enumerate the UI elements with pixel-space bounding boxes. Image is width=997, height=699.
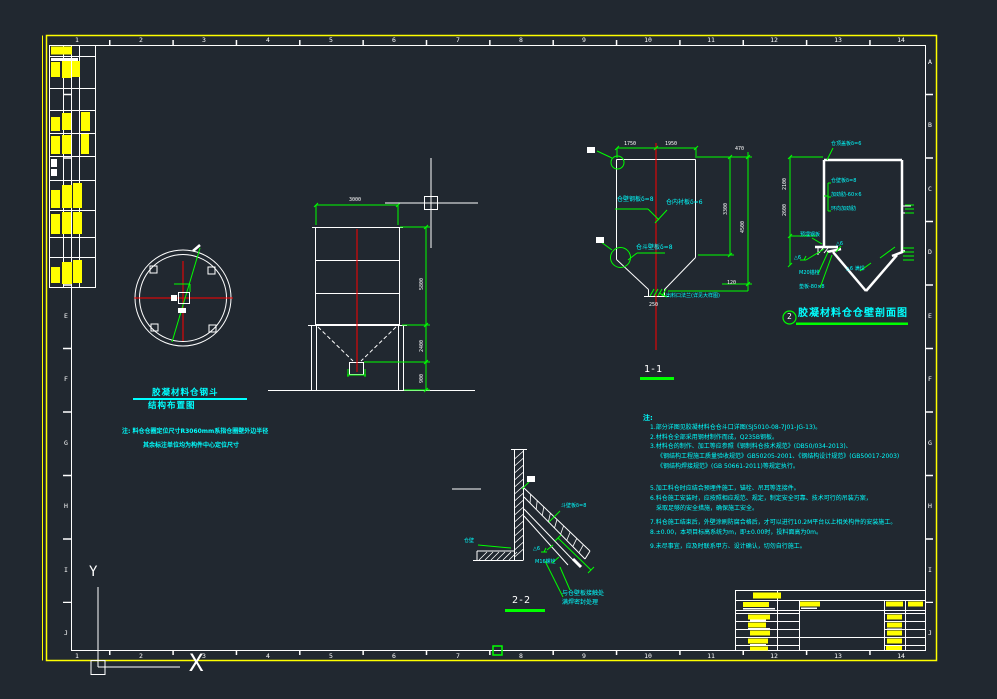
ruler-row-left: E [60, 313, 72, 320]
ruler-row-left: F [60, 376, 72, 383]
note-line: 6.料仓施工安装时，应按照相应规范、规定，制定安全可靠、技术可行的吊装方案， [650, 496, 872, 502]
ruler-row-left: J [60, 630, 72, 637]
ruler-row-right: H [924, 503, 936, 510]
plan-title: 胶凝材料仓钢斗 [152, 389, 219, 398]
section2-label-weld-right: △6 满焊 [846, 267, 865, 272]
ruler-col-top: 12 [768, 37, 780, 44]
ruler-col-bottom: 1 [71, 653, 83, 660]
detail-label-weld: △6 [533, 547, 540, 552]
dim-text: 470 [735, 147, 744, 152]
plan-subtitle: 结构布置图 [148, 402, 196, 411]
dim-text: 1950 [665, 142, 677, 147]
note-line: 5.加工料仓时应结合预埋件施工，锚栓、吊耳等连接件。 [650, 486, 800, 492]
section2-label-weld: △6 [794, 256, 801, 261]
dim-text: 4500 [741, 221, 746, 233]
note-line: 2.材料仓全部采用钢材制作而成，Q235B钢板。 [650, 435, 778, 441]
ruler-col-bottom: 14 [895, 653, 907, 660]
ruler-row-right: E [924, 313, 936, 320]
detail-2-2 [452, 450, 594, 613]
ruler-col-bottom: 3 [198, 653, 210, 660]
ruler-col-top: 4 [262, 37, 274, 44]
section1-label-outlet: 出料口法兰(详见大样图) [666, 294, 720, 299]
detail-label-plate: 斗壁板δ=8 [561, 504, 586, 509]
note-line: 1.部分详图见胶凝材料仓仓斗口详图(SJ5010-08-7J01-JG-13)。 [650, 425, 821, 431]
detail-title-underline [505, 609, 545, 612]
dim-text: 120 [727, 281, 736, 286]
detail-note-line2: 满焊密封处理 [562, 600, 598, 606]
title-strip [50, 46, 96, 288]
plan-note-1: 注: 料仓仓圈定位尺寸R3060mm系指仓圈壁外边半径 [122, 429, 268, 435]
detail-leaders [478, 476, 594, 597]
ucs-icon [91, 587, 180, 675]
note-line: 《钢结构工程施工质量验收规范》GB50205-2001、《钢结构设计规范》(GB… [657, 454, 899, 460]
note-line: 3.材料仓的制作、加工等应参照《钢制料仓技术规范》(DB50/034-2013)… [650, 444, 852, 450]
sheet-frame [43, 36, 937, 661]
section2-label-weld-cone: △6 [836, 242, 843, 247]
dim-text: 3300 [724, 203, 729, 215]
title-block [736, 591, 926, 651]
ruler-col-bottom: 2 [135, 653, 147, 660]
section1-title: 1-1 [644, 365, 662, 375]
ruler-row-right: D [924, 249, 936, 256]
detail-title: 2-2 [512, 596, 530, 606]
ruler-col-top: 8 [515, 37, 527, 44]
ruler-col-bottom: 11 [705, 653, 717, 660]
section2-label-top: 仓顶盖板δ=6 [831, 142, 861, 147]
section1-dimensions [615, 146, 752, 296]
section1-label-liner: 仓内衬板δ=6 [666, 200, 703, 206]
section1-label-wall: 仓壁钢板δ=8 [617, 197, 654, 203]
section2-label-ring: 环向加劲肋 [831, 207, 856, 212]
notes-header: 注: [643, 415, 653, 422]
ruler-col-top: 7 [452, 37, 464, 44]
plan-note-2: 其余标注单位均为构件中心定位尺寸 [143, 443, 239, 449]
ruler-col-bottom: 12 [768, 653, 780, 660]
section2-label-rib: 加劲肋-60×6 [831, 193, 862, 198]
section2-title-underline [796, 323, 908, 326]
section1-label-hopper: 仓斗壁板δ=8 [636, 245, 673, 251]
ruler-col-top: 14 [895, 37, 907, 44]
ruler-row-right: C [924, 186, 936, 193]
ruler-col-top: 2 [135, 37, 147, 44]
section2-label-pad: 垫板-80×8 [799, 285, 825, 290]
ruler-row-right: G [924, 440, 936, 447]
ruler-col-bottom: 6 [388, 653, 400, 660]
drawing-linework: Y X [0, 0, 997, 699]
ruler-col-top: 13 [832, 37, 844, 44]
plan-view [133, 245, 247, 400]
ucs-y-axis-label: Y [89, 564, 98, 580]
section2-title: 胶凝材料仓仓壁剖面图 [798, 309, 908, 319]
ruler-col-bottom: 7 [452, 653, 464, 660]
note-line: 采取足够的安全措施，确保施工安全。 [656, 506, 758, 512]
detail-label-wall: 仓壁 [464, 539, 474, 544]
detail-wall-hatch [479, 451, 524, 560]
ruler-col-top: 10 [642, 37, 654, 44]
cad-viewport[interactable]: Y X 1 2 3 4 5 6 7 8 9 10 11 12 13 14 1 2… [0, 0, 997, 699]
section-1-1 [587, 143, 752, 380]
ruler-col-top: 6 [388, 37, 400, 44]
dim-text: 2600 [783, 204, 788, 216]
ruler-row-left: H [60, 503, 72, 510]
ruler-col-bottom: 4 [262, 653, 274, 660]
ruler-col-top: 5 [325, 37, 337, 44]
ruler-col-top: 9 [578, 37, 590, 44]
detail-note-line1: 与仓壁板接触处 [562, 591, 604, 597]
dim-text: 2400 [420, 340, 425, 352]
ruler-col-bottom: 13 [832, 653, 844, 660]
dim-text: 250 [649, 303, 658, 308]
section2-label-wall: 仓壁板δ=8 [831, 179, 856, 184]
section2-label-embed: 预埋钢板 [800, 233, 820, 238]
dim-text: 3000 [349, 198, 361, 203]
ruler-row-right: J [924, 630, 936, 637]
note-line: 7.料仓施工结束后，外壁涂刷防腐合格后，才可以进行10.2M平台以上相关构件的安… [650, 520, 896, 526]
ruler-col-top: 3 [198, 37, 210, 44]
crosshair-cursor [385, 158, 478, 248]
ruler-row-right: A [924, 59, 936, 66]
ruler-col-top: 11 [705, 37, 717, 44]
note-line: 《钢结构焊接规范》(GB 50661-2011)等规定执行。 [657, 464, 799, 470]
section1-leaders [615, 209, 667, 297]
ruler-row-right: B [924, 122, 936, 129]
plan-title-underline [133, 398, 247, 400]
ruler-col-bottom: 9 [578, 653, 590, 660]
ruler-row-left: G [60, 440, 72, 447]
ruler-col-bottom: 8 [515, 653, 527, 660]
section2-label-anchor: M20锚栓 [799, 271, 820, 276]
ruler-col-top: 1 [71, 37, 83, 44]
note-line: 9.未尽事宜，应及时联系甲方、设计确认，切勿自行施工。 [650, 544, 806, 550]
note-line: 8.±0.00，本项目标高系统为m，即±0.00时，投料面高为0m。 [650, 530, 822, 536]
dim-text: 1750 [624, 142, 636, 147]
ruler-col-bottom: 10 [642, 653, 654, 660]
ruler-col-bottom: 5 [325, 653, 337, 660]
ruler-row-left: I [60, 567, 72, 574]
section1-title-underline [640, 377, 674, 380]
dim-text: 2100 [783, 178, 788, 190]
elevation-dimensions [314, 203, 430, 392]
elevation-view [268, 203, 475, 392]
detail-label-bolt: M16螺栓 [535, 560, 556, 565]
ruler-row-right: F [924, 376, 936, 383]
ruler-row-right: I [924, 567, 936, 574]
dim-text: 5800 [420, 278, 425, 290]
section2-bubble-number: 2 [787, 313, 792, 321]
dim-text: 900 [420, 374, 425, 383]
